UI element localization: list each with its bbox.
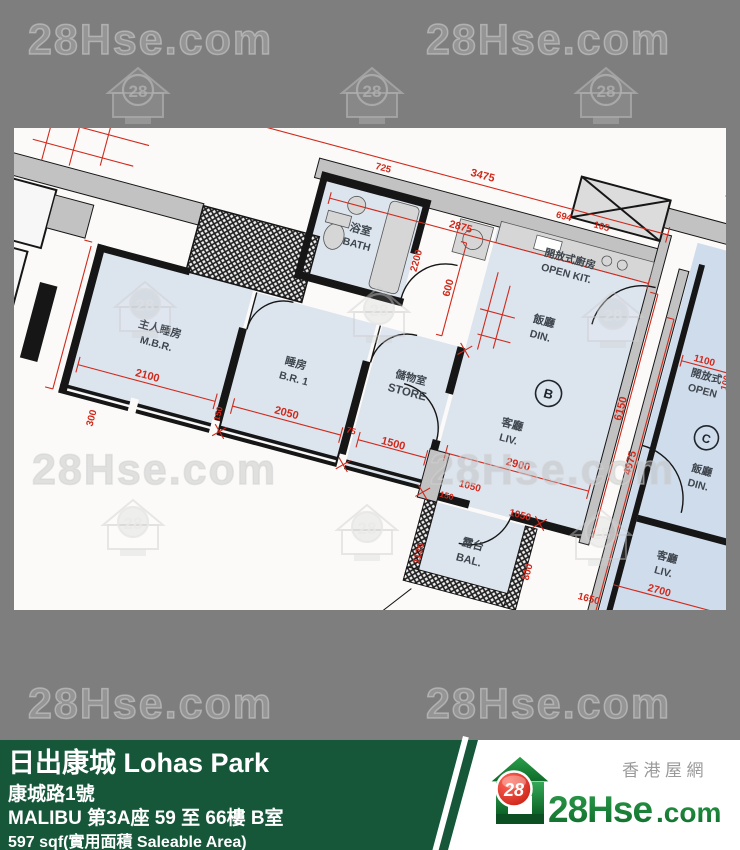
logo-tagline: 香港屋網 [622,761,708,780]
red-dim-line [69,128,84,166]
red-dim-line [84,240,92,242]
house-body [113,93,163,117]
floorplan-svg: 8253475725694105287560022003002100150205… [14,128,726,610]
house-roof [342,68,402,93]
rotated-plan-group: 8253475725694105287560022003002100150205… [14,128,726,610]
logo-brand-suffix: .com [656,797,721,828]
floorplan-canvas: 8253475725694105287560022003002100150205… [14,128,726,610]
logo-base [496,814,544,824]
house-body [347,93,397,117]
dim-label: 600 [440,278,456,298]
house-base [593,117,619,124]
house-roof [576,68,636,93]
site-logo: 28 28Hse .com 香港屋網 [484,748,736,846]
house-roof [108,68,168,93]
badge-circle [123,75,153,105]
adjacent-unit-room [14,239,27,305]
red-dim-line [45,387,53,389]
dim-label: 300 [85,408,100,427]
house-logo-icon: 28 [490,756,550,824]
badge-circle [357,75,387,105]
badge-number: 28 [597,82,616,101]
red-dim-line [436,334,442,336]
unit-info: MALIBU 第3A座 59 至 66樓 B室 [8,803,284,830]
badge-circle [591,75,621,105]
logo-badge-number: 28 [503,780,524,800]
watermark-house-icon: 28 [339,66,405,126]
leader-line [270,561,411,610]
watermark-text: 28Hse.com [28,680,273,729]
house-base [359,117,385,124]
house-base [125,117,151,124]
logo-brand-main: 28Hse [548,789,652,830]
watermark-text: 28Hse.com [28,16,273,65]
watermark-house-icon: 28 [105,66,171,126]
watermark-text: 28Hse.com [426,16,671,65]
listing-floorplan-image: 28 [0,0,740,850]
watermark-text: 28Hse.com [426,680,671,729]
area-info: 597 sqf(實用面積 Saleable Area) [8,828,247,850]
estate-address: 康城路1號 [8,779,95,806]
badge-number: 28 [129,82,148,101]
badge-number: 28 [363,82,382,101]
watermark-house-icon: 28 [573,66,639,126]
house-body [581,93,631,117]
site-logo-svg: 28 28Hse .com 香港屋網 [484,748,736,846]
red-dim-line [35,128,149,146]
estate-name: 日出康城 Lohas Park [8,741,269,780]
